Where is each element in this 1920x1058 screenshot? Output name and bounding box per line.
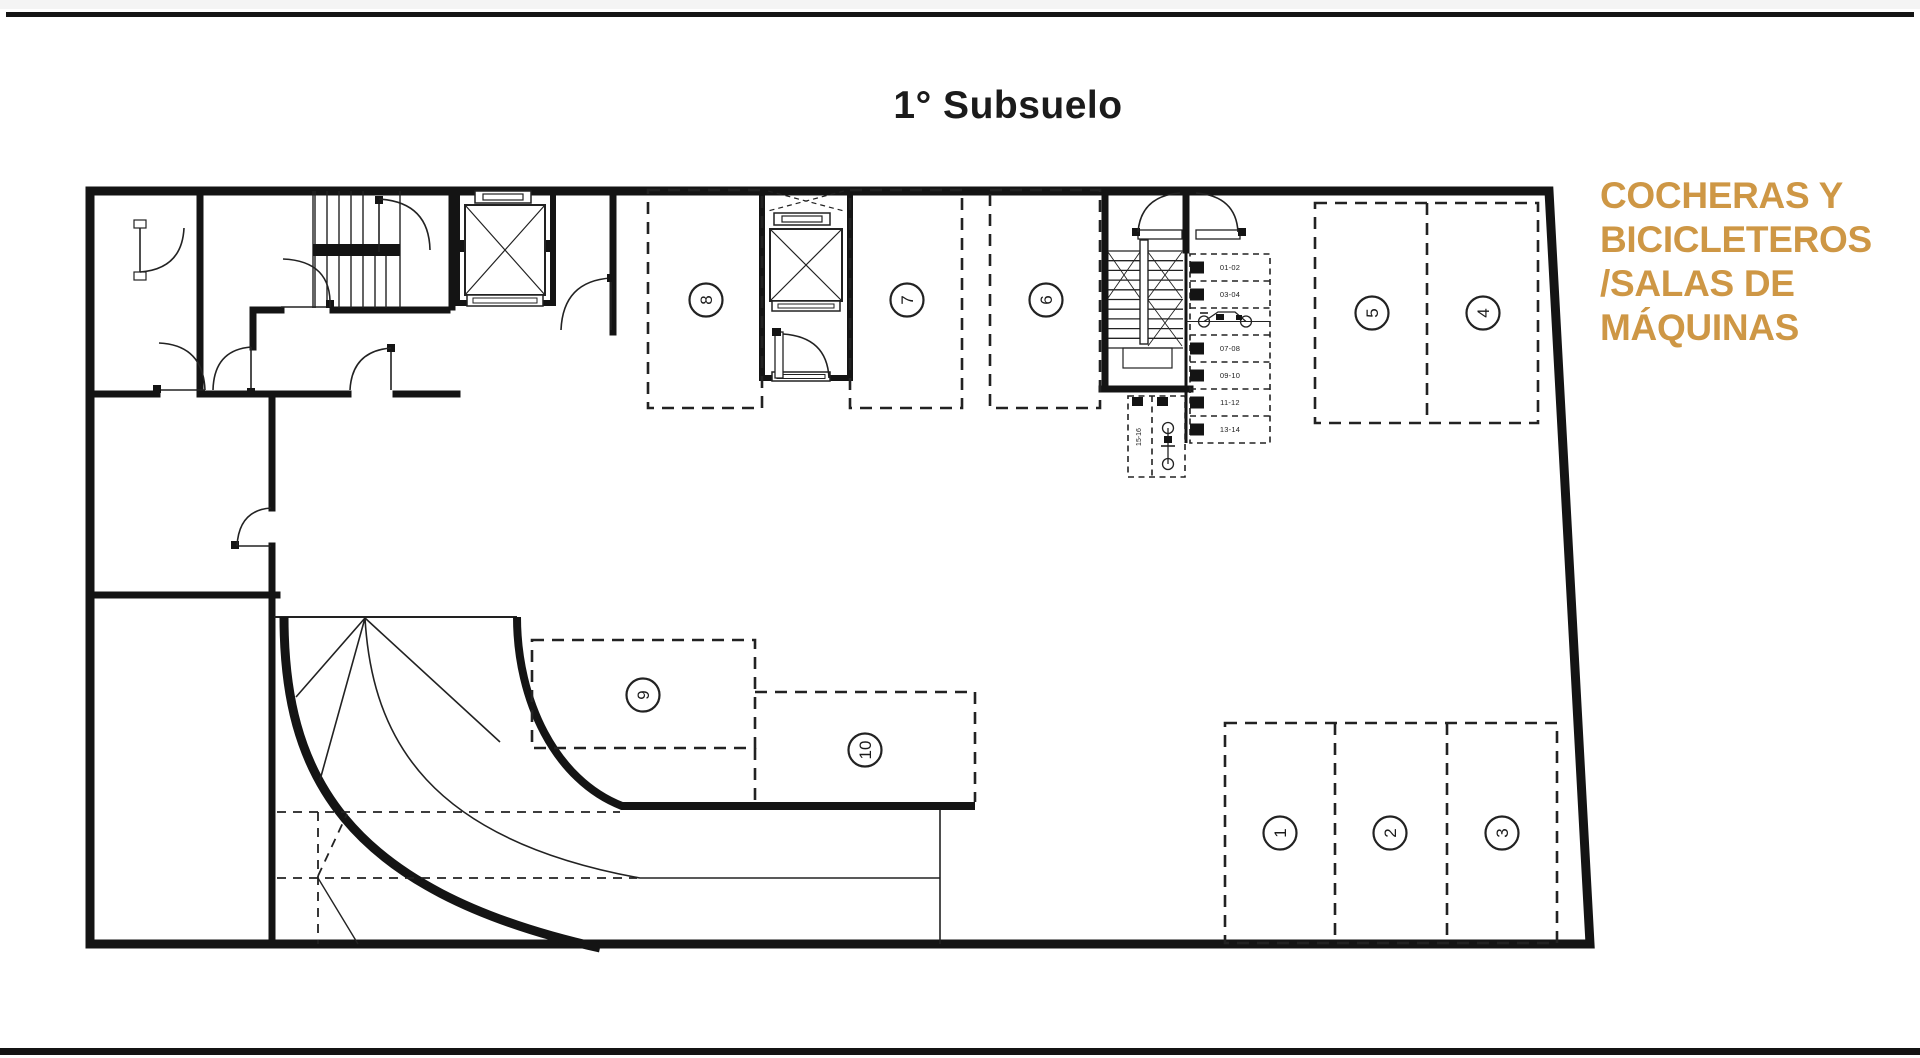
parking-spot-7: 7: [891, 284, 924, 317]
ramp: [274, 617, 975, 948]
svg-text:1: 1: [1271, 828, 1290, 837]
ramp-inner-wall: [517, 617, 975, 806]
ramp-outer-wall: [284, 617, 600, 948]
svg-text:01-02: 01-02: [1220, 263, 1240, 272]
svg-text:7: 7: [898, 295, 917, 304]
door-elevator-2-vestibule: [772, 328, 829, 378]
parking-spot-8: 8: [690, 284, 723, 317]
parking-spot-2: 2: [1374, 817, 1407, 850]
parking-spot-9: 9: [627, 679, 660, 712]
svg-text:9: 9: [634, 690, 653, 699]
svg-text:07-08: 07-08: [1220, 344, 1240, 353]
elevator-1-sill: [467, 295, 543, 306]
svg-text:6: 6: [1037, 295, 1056, 304]
svg-text:5: 5: [1363, 308, 1382, 317]
door-stair-foot: [281, 259, 334, 308]
door-corridor-east: [561, 274, 615, 330]
parking-spot-6: 6: [1030, 284, 1063, 317]
svg-text:13-14: 13-14: [1220, 425, 1240, 434]
parking-spot-3: 3: [1486, 817, 1519, 850]
main-stair: [313, 191, 400, 308]
parking-spot-5: 5: [1356, 297, 1389, 330]
door-stair-top: [375, 196, 430, 252]
right-stair: [1108, 240, 1183, 368]
door-right-stair-left: [1132, 193, 1182, 239]
svg-text:3: 3: [1493, 828, 1512, 837]
door-right-stair-right: [1196, 193, 1246, 239]
elevator-1: [457, 191, 553, 306]
bike-rack: 01-02 03-04 07-08 09-10 11-12 13-14: [1186, 254, 1270, 443]
bicycle-icon-vertical: [1161, 423, 1175, 470]
parking-spot-10: 10: [849, 734, 882, 767]
svg-text:2: 2: [1381, 828, 1400, 837]
svg-text:03-04: 03-04: [1220, 290, 1240, 299]
svg-text:8: 8: [697, 295, 716, 304]
stair-landing-bar: [313, 244, 400, 256]
floor-plan: 1 2 3 4 5 6 7 8: [0, 0, 1920, 1058]
svg-text:10: 10: [856, 741, 875, 760]
svg-text:4: 4: [1474, 308, 1493, 317]
doors: [134, 193, 1246, 549]
parking-spot-1: 1: [1264, 817, 1297, 850]
svg-text:11-12: 11-12: [1220, 398, 1240, 407]
door-topleft-room: [134, 220, 184, 280]
stair-lower-landing: [1123, 348, 1172, 368]
ramp-fan-lines: [296, 618, 500, 780]
elevator-2-sill: [772, 301, 840, 311]
stair-stringer: [1140, 240, 1148, 344]
door-vestibule-south: [350, 344, 395, 390]
bicycle-icon-horizontal: [1186, 312, 1270, 327]
svg-text:09-10: 09-10: [1220, 371, 1240, 380]
interior-walls: [90, 191, 1190, 944]
svg-text:15-16: 15-16: [1136, 428, 1143, 446]
door-left-mid-room: [231, 508, 271, 549]
bike-stalls-15-16: 15-16: [1128, 396, 1185, 477]
bike-rack-ticks: [1190, 262, 1204, 436]
parking-spot-4: 4: [1467, 297, 1500, 330]
ramp-hidden-edges: [277, 812, 637, 944]
door-vestibule-left: [213, 347, 255, 396]
